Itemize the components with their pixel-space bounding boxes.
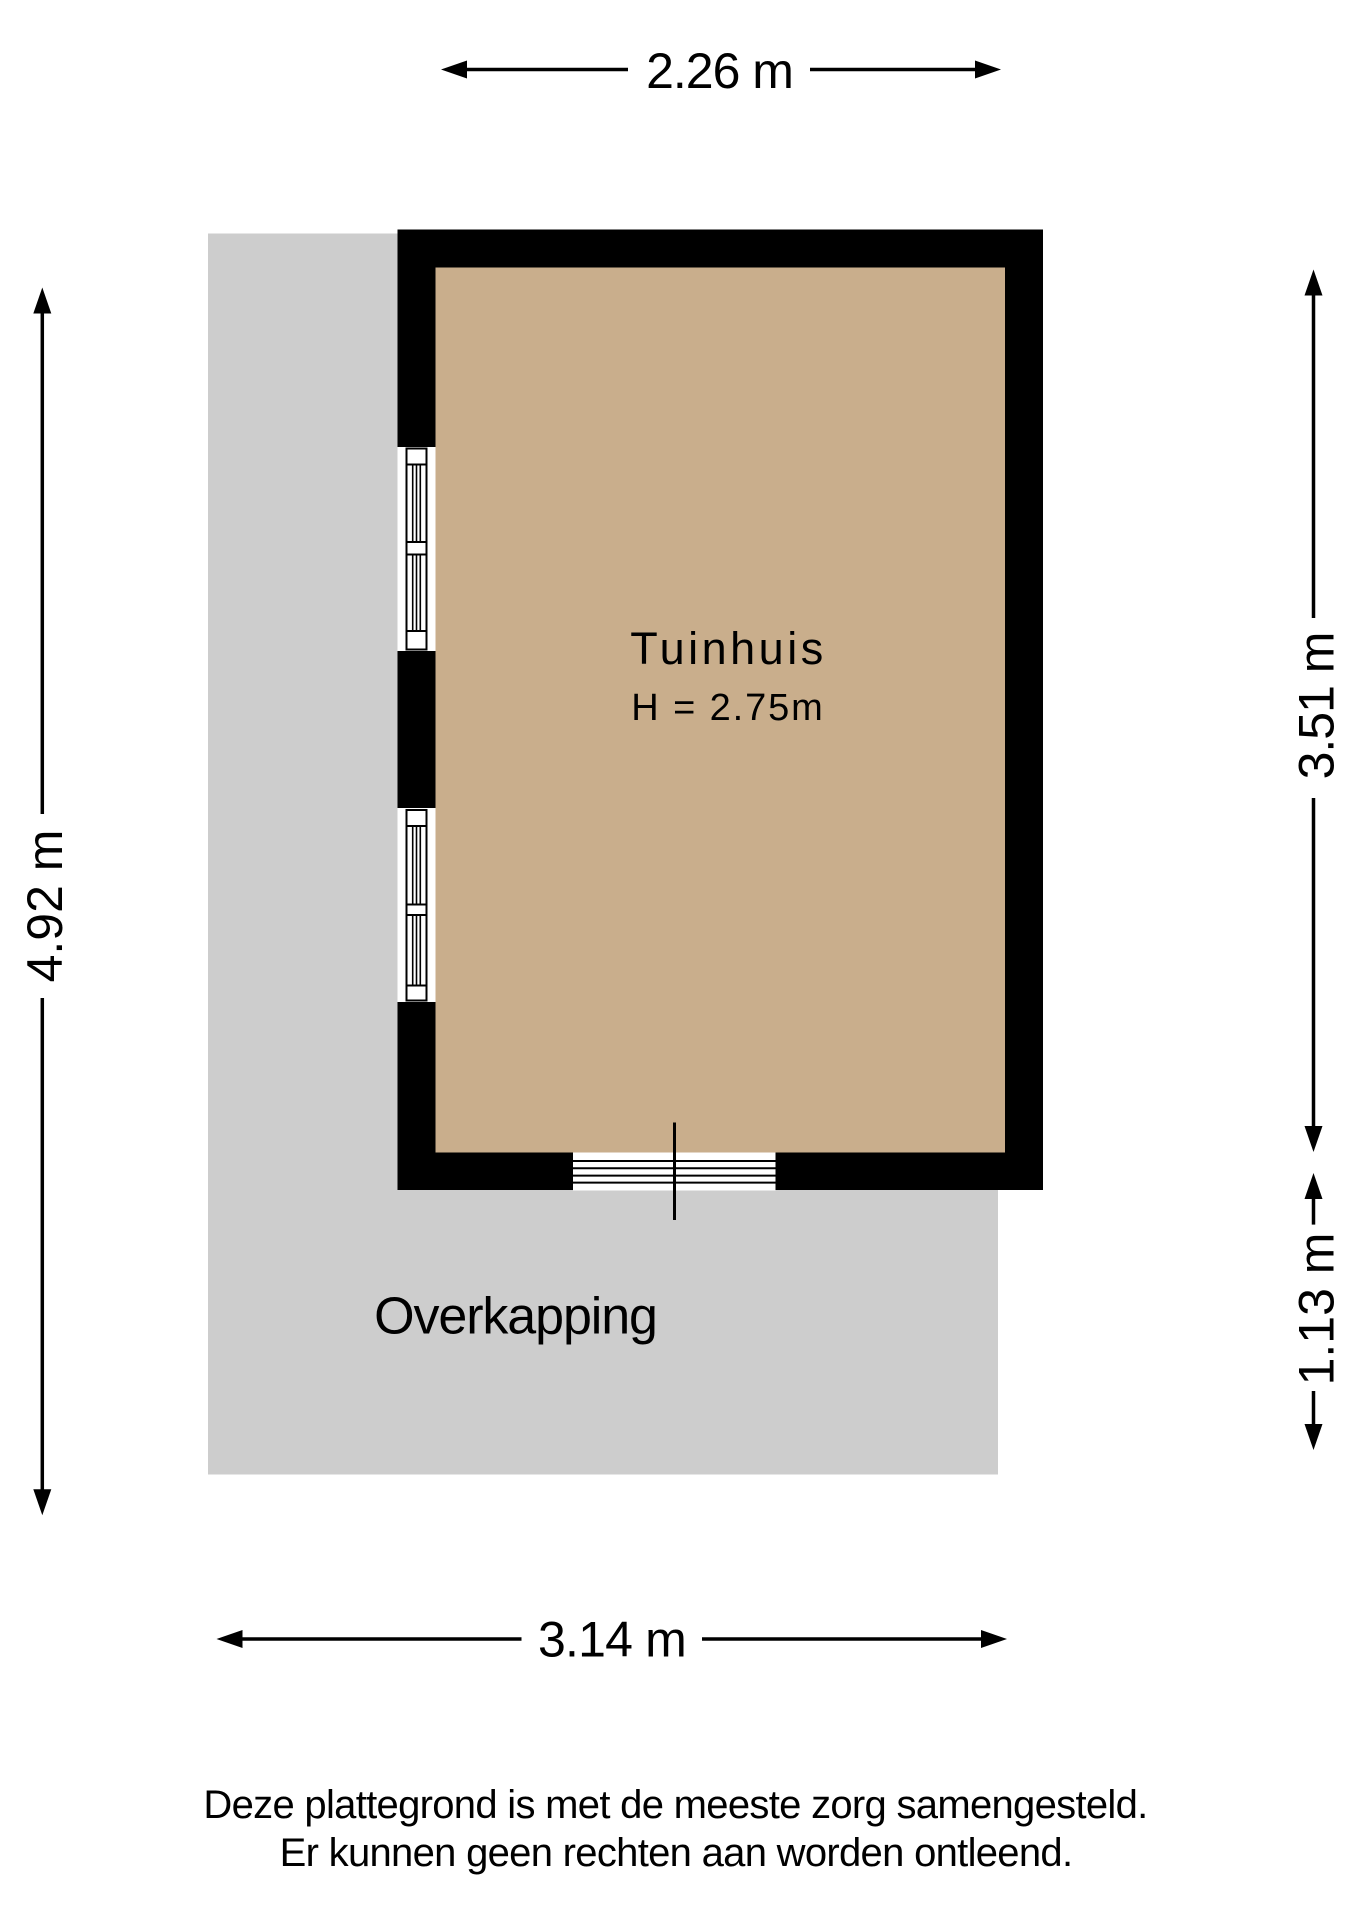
svg-text:3.14 m: 3.14 m [538, 1612, 686, 1668]
svg-text:4.92 m: 4.92 m [17, 830, 73, 983]
svg-text:H = 2.75m: H = 2.75m [631, 687, 824, 729]
svg-text:3.51 m: 3.51 m [1288, 633, 1344, 780]
svg-text:Er kunnen geen rechten aan wor: Er kunnen geen rechten aan worden ontlee… [280, 1831, 1073, 1875]
svg-text:1.13 m: 1.13 m [1288, 1233, 1344, 1386]
svg-text:Overkapping: Overkapping [374, 1288, 657, 1346]
svg-text:Deze plattegrond is met de mee: Deze plattegrond is met de meeste zorg s… [203, 1783, 1147, 1827]
svg-text:Tuinhuis: Tuinhuis [630, 623, 826, 674]
svg-text:2.26 m: 2.26 m [646, 43, 793, 99]
